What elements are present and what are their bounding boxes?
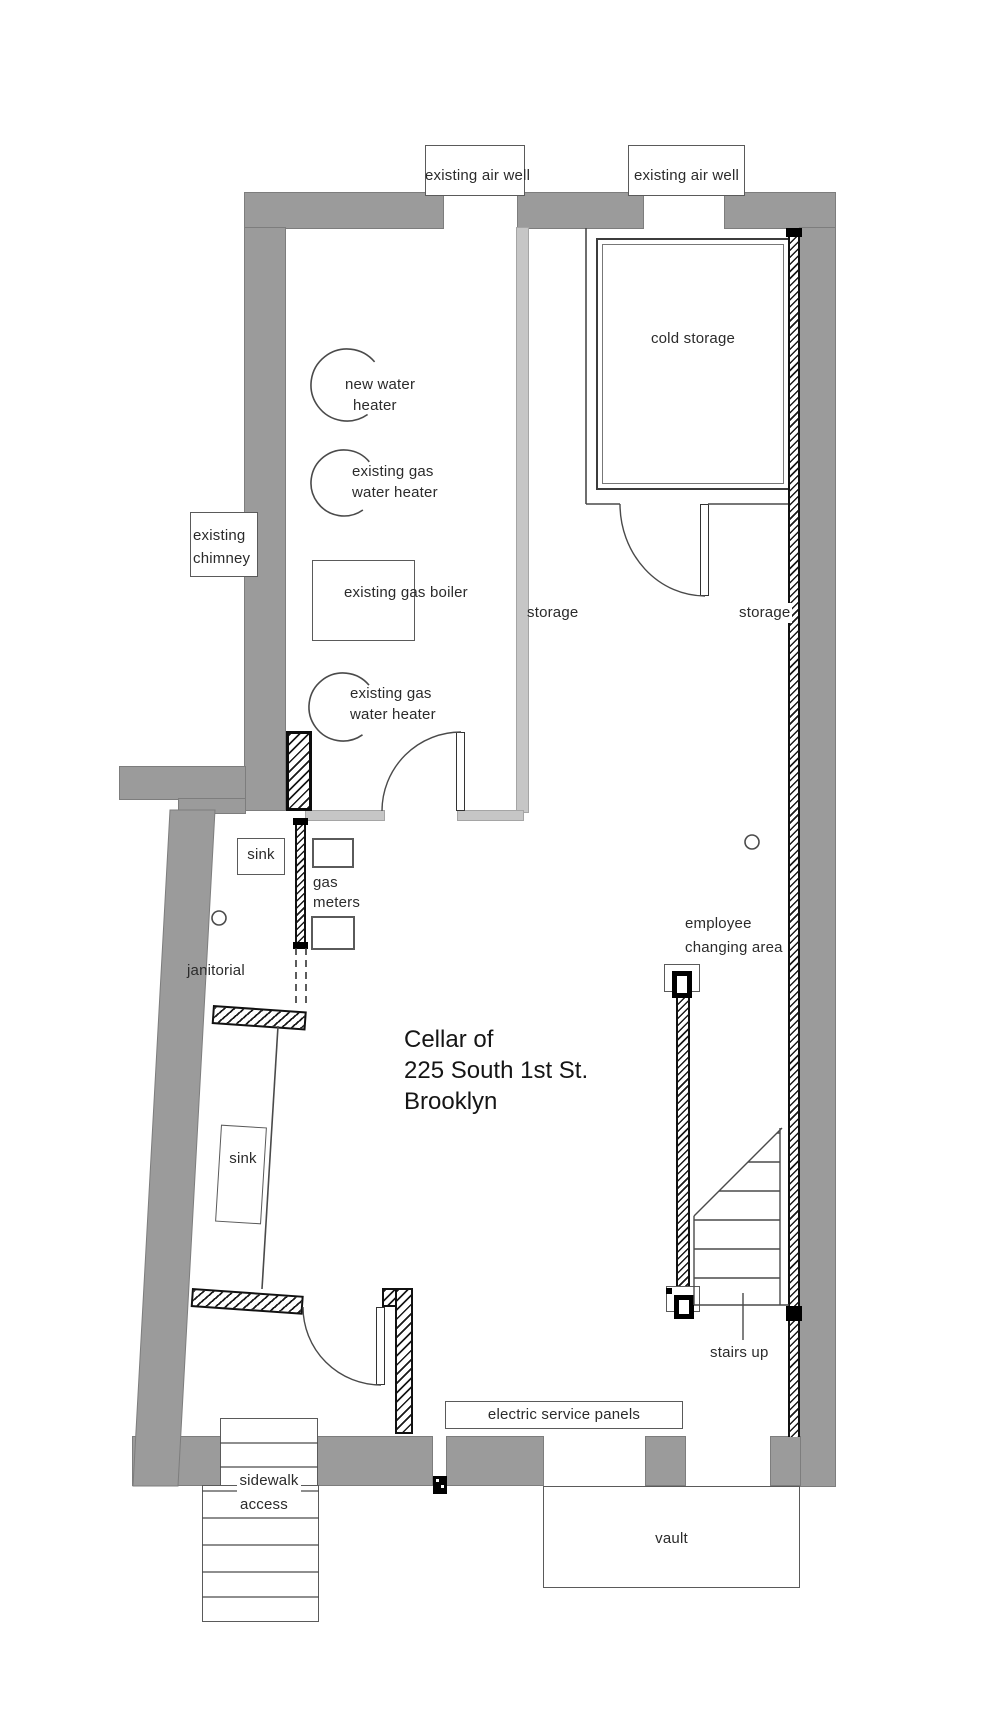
- sidewalk-access-label: sidewalk access: [220, 1469, 318, 1517]
- bottom-left-door-leaf: [376, 1307, 385, 1385]
- bottom-left-door-swing: [303, 1307, 381, 1385]
- plan-title-line1: Cellar of: [404, 1024, 588, 1055]
- gas-water-heater-lower-label: existing gas water heater: [350, 683, 436, 725]
- cold-storage-label: cold storage: [596, 329, 790, 349]
- gas-meter-wall-bottom-cap: [293, 942, 308, 949]
- gas-boiler-label: existing gas boiler: [344, 583, 468, 603]
- gas-meter-wall: [295, 822, 306, 946]
- left-wall-jog-step: [179, 799, 245, 813]
- electric-service-panels-label: electric service panels: [445, 1405, 683, 1425]
- air-well-left-label: existing air well: [425, 166, 525, 186]
- cold-storage-unit: [596, 238, 790, 490]
- top-wall-segment-3: [725, 193, 835, 228]
- janitorial-hatched-wall: [212, 1005, 307, 1031]
- cold-storage-unit-inner-line: [602, 244, 784, 484]
- stairs-treads: [694, 1133, 789, 1305]
- right-strip-marker: [786, 1306, 802, 1321]
- sink-upper-label: sink: [237, 845, 285, 865]
- floor-drain-circle-right: [745, 835, 759, 849]
- plan-title-line2: 225 South 1st St.: [404, 1055, 588, 1086]
- plan-title-line3: Brooklyn: [404, 1086, 588, 1117]
- stairs-break-line: [694, 1128, 782, 1216]
- l-wall-vertical: [395, 1288, 413, 1434]
- vault-label: vault: [543, 1529, 800, 1549]
- employee-changing-area-label: employee changing area: [685, 912, 783, 960]
- stair-rail-bottom-post: [674, 1295, 694, 1319]
- bottom-wall-segment-3: [447, 1437, 543, 1485]
- gas-meter-wall-top-cap: [293, 818, 308, 825]
- sink-lower-box: [215, 1125, 267, 1225]
- stair-rail-wall: [676, 996, 690, 1286]
- hatched-pier: [286, 731, 312, 811]
- wall-penetration-circle-left: [212, 911, 226, 925]
- plan-title: Cellar of 225 South 1st St. Brooklyn: [404, 1024, 588, 1117]
- right-wall-furring-strip: [788, 228, 800, 1437]
- cold-storage-door-leaf: [700, 504, 709, 596]
- right-strip-top-cap: [786, 228, 802, 237]
- boiler-room-south-wall-right: [458, 811, 523, 820]
- left-wall-jog-arm: [120, 767, 245, 799]
- gas-meters-label: gas meters: [313, 873, 360, 913]
- bottom-wall-door-marker: [433, 1476, 447, 1494]
- storage-left-label: storage: [527, 603, 578, 623]
- sink-lower-label: sink: [219, 1149, 267, 1169]
- chimney-label: existing chimney: [193, 524, 250, 570]
- gas-water-heater-upper-label: existing gas water heater: [352, 461, 438, 503]
- interior-partition-wall: [517, 228, 528, 812]
- top-wall-segment-2: [518, 193, 643, 228]
- stairs-up-label: stairs up: [710, 1343, 769, 1363]
- lower-hatched-wall: [191, 1288, 304, 1315]
- bottom-wall-segment-1: [133, 1437, 220, 1485]
- boiler-room-door-swing: [382, 732, 461, 811]
- bottom-wall-segment-4: [771, 1437, 800, 1485]
- cold-storage-door-swing: [620, 504, 705, 596]
- new-water-heater-label: new water heater: [345, 374, 415, 416]
- diagonal-left-wall: [133, 810, 215, 1486]
- stair-rail-bottom-dot: [666, 1288, 672, 1294]
- air-well-right-label: existing air well: [628, 166, 745, 186]
- stair-rail-top-post: [672, 971, 692, 998]
- gas-meter-box-2: [311, 916, 355, 950]
- boiler-room-south-wall-left: [306, 811, 384, 820]
- janitorial-label: janitorial: [187, 961, 245, 981]
- right-wall: [800, 228, 835, 1486]
- bottom-wall-pier: [646, 1437, 685, 1485]
- boiler-room-door-leaf: [456, 732, 465, 811]
- top-wall-segment-1: [245, 193, 443, 228]
- storage-right-label: storage: [737, 603, 792, 623]
- cellar-floor-plan: existing air well existing air well cold…: [0, 0, 1000, 1720]
- gas-meter-box-1: [312, 838, 354, 868]
- bottom-wall-segment-2: [318, 1437, 432, 1485]
